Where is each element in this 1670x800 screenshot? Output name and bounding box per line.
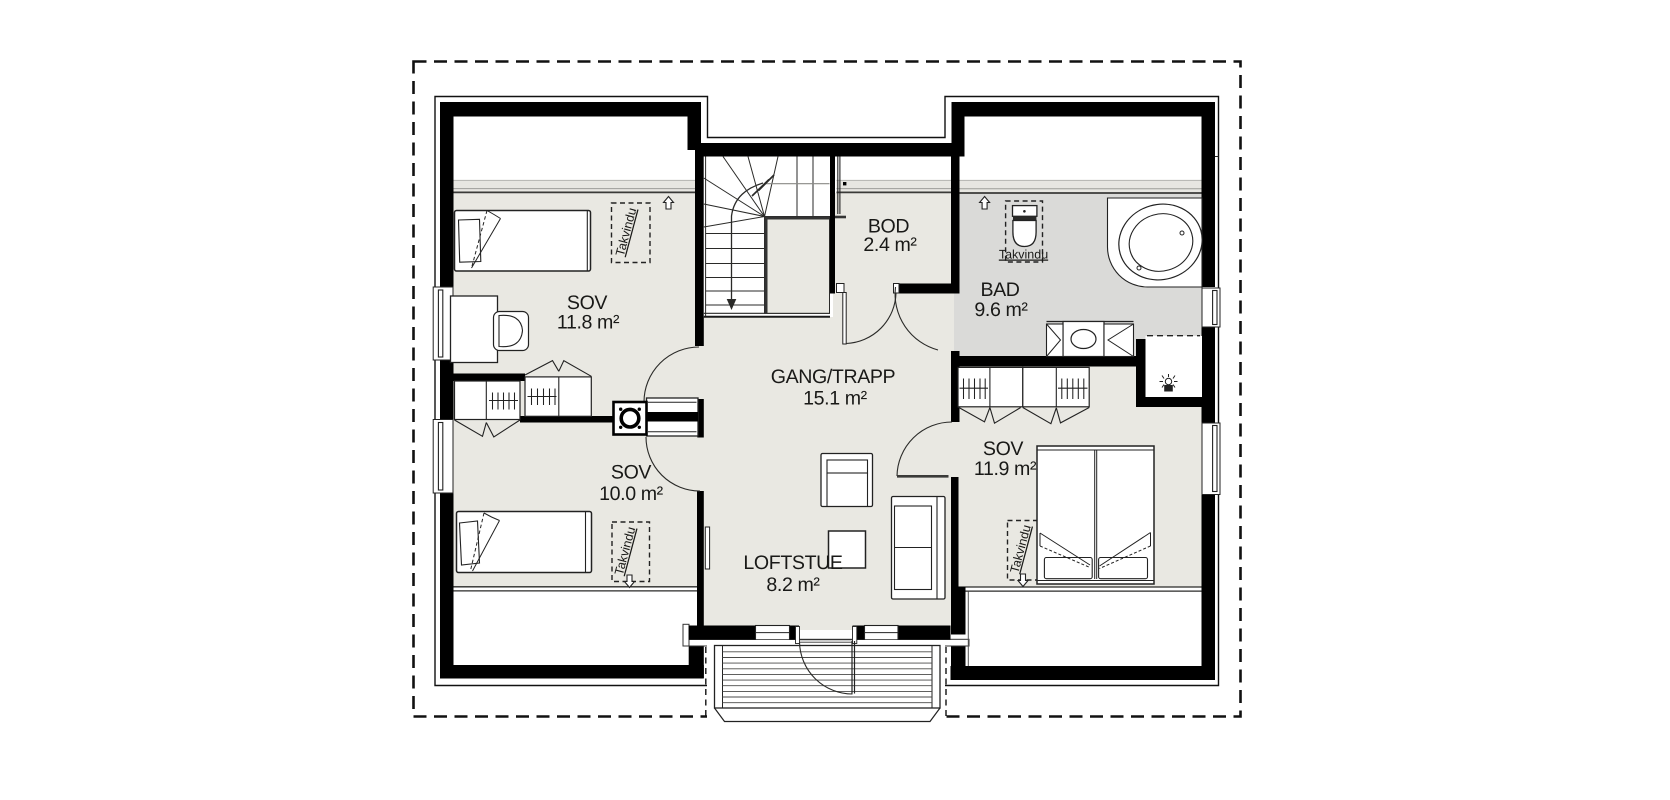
svg-text:8.2 m²: 8.2 m² [766, 574, 820, 596]
svg-text:10.0 m²: 10.0 m² [599, 483, 664, 505]
svg-text:GANG/TRAPP: GANG/TRAPP [771, 366, 896, 388]
svg-text:11.9 m²: 11.9 m² [974, 458, 1037, 480]
svg-text:LOFTSTUE: LOFTSTUE [743, 552, 842, 574]
svg-text:2.4 m²: 2.4 m² [863, 234, 917, 256]
svg-text:SOV: SOV [611, 462, 652, 484]
svg-text:Takvindu: Takvindu [999, 248, 1048, 262]
svg-text:SOV: SOV [983, 438, 1024, 460]
svg-text:BAD: BAD [980, 279, 1019, 301]
svg-text:15.1 m²: 15.1 m² [803, 388, 868, 410]
svg-text:9.6 m²: 9.6 m² [974, 299, 1028, 321]
svg-text:11.8 m²: 11.8 m² [557, 312, 620, 334]
